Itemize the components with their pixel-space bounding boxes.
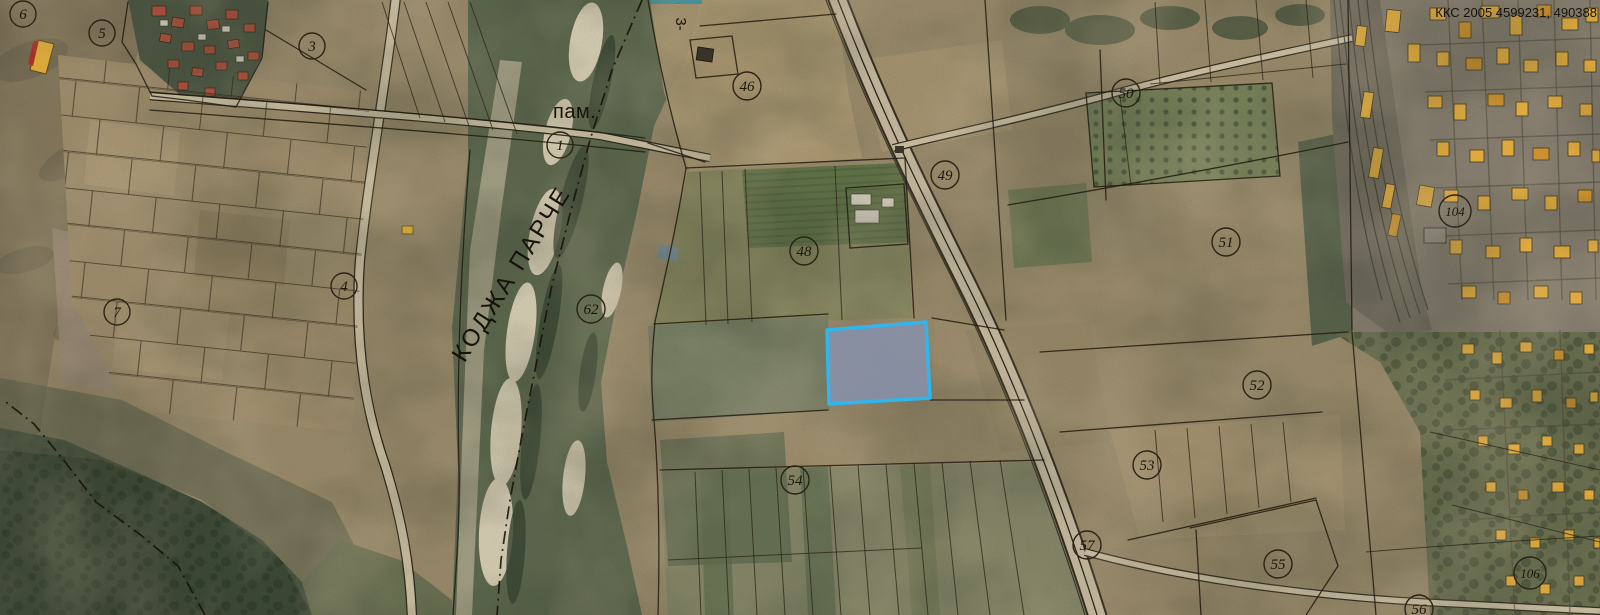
svg-text:62: 62 — [584, 302, 600, 318]
svg-text:49: 49 — [938, 168, 954, 184]
svg-text:5: 5 — [98, 26, 106, 42]
road-number-label: 3- — [672, 17, 689, 30]
svg-text:1: 1 — [556, 138, 564, 154]
monument-label: пам. — [553, 101, 596, 123]
svg-text:57: 57 — [1080, 538, 1097, 554]
svg-text:3: 3 — [307, 39, 316, 55]
svg-text:50: 50 — [1119, 86, 1135, 102]
svg-text:6: 6 — [19, 7, 27, 23]
svg-text:104: 104 — [1445, 204, 1465, 219]
svg-text:52: 52 — [1250, 378, 1266, 394]
svg-text:53: 53 — [1140, 458, 1155, 474]
svg-text:46: 46 — [740, 79, 756, 95]
svg-text:48: 48 — [797, 244, 813, 260]
svg-text:106: 106 — [1520, 566, 1540, 581]
cadastral-map-image[interactable]: 653174624648495051525354555756104106 пам… — [0, 0, 1600, 615]
map-canvas[interactable]: 653174624648495051525354555756104106 пам… — [0, 0, 1600, 615]
svg-text:51: 51 — [1219, 235, 1234, 251]
svg-text:4: 4 — [340, 279, 348, 295]
svg-text:56: 56 — [1412, 602, 1428, 615]
svg-text:55: 55 — [1271, 557, 1287, 573]
coordinate-readout: ККС 2005 4599231, 490388 — [1435, 5, 1597, 20]
svg-text:54: 54 — [788, 473, 804, 489]
highlighted-parcel[interactable] — [827, 322, 930, 404]
